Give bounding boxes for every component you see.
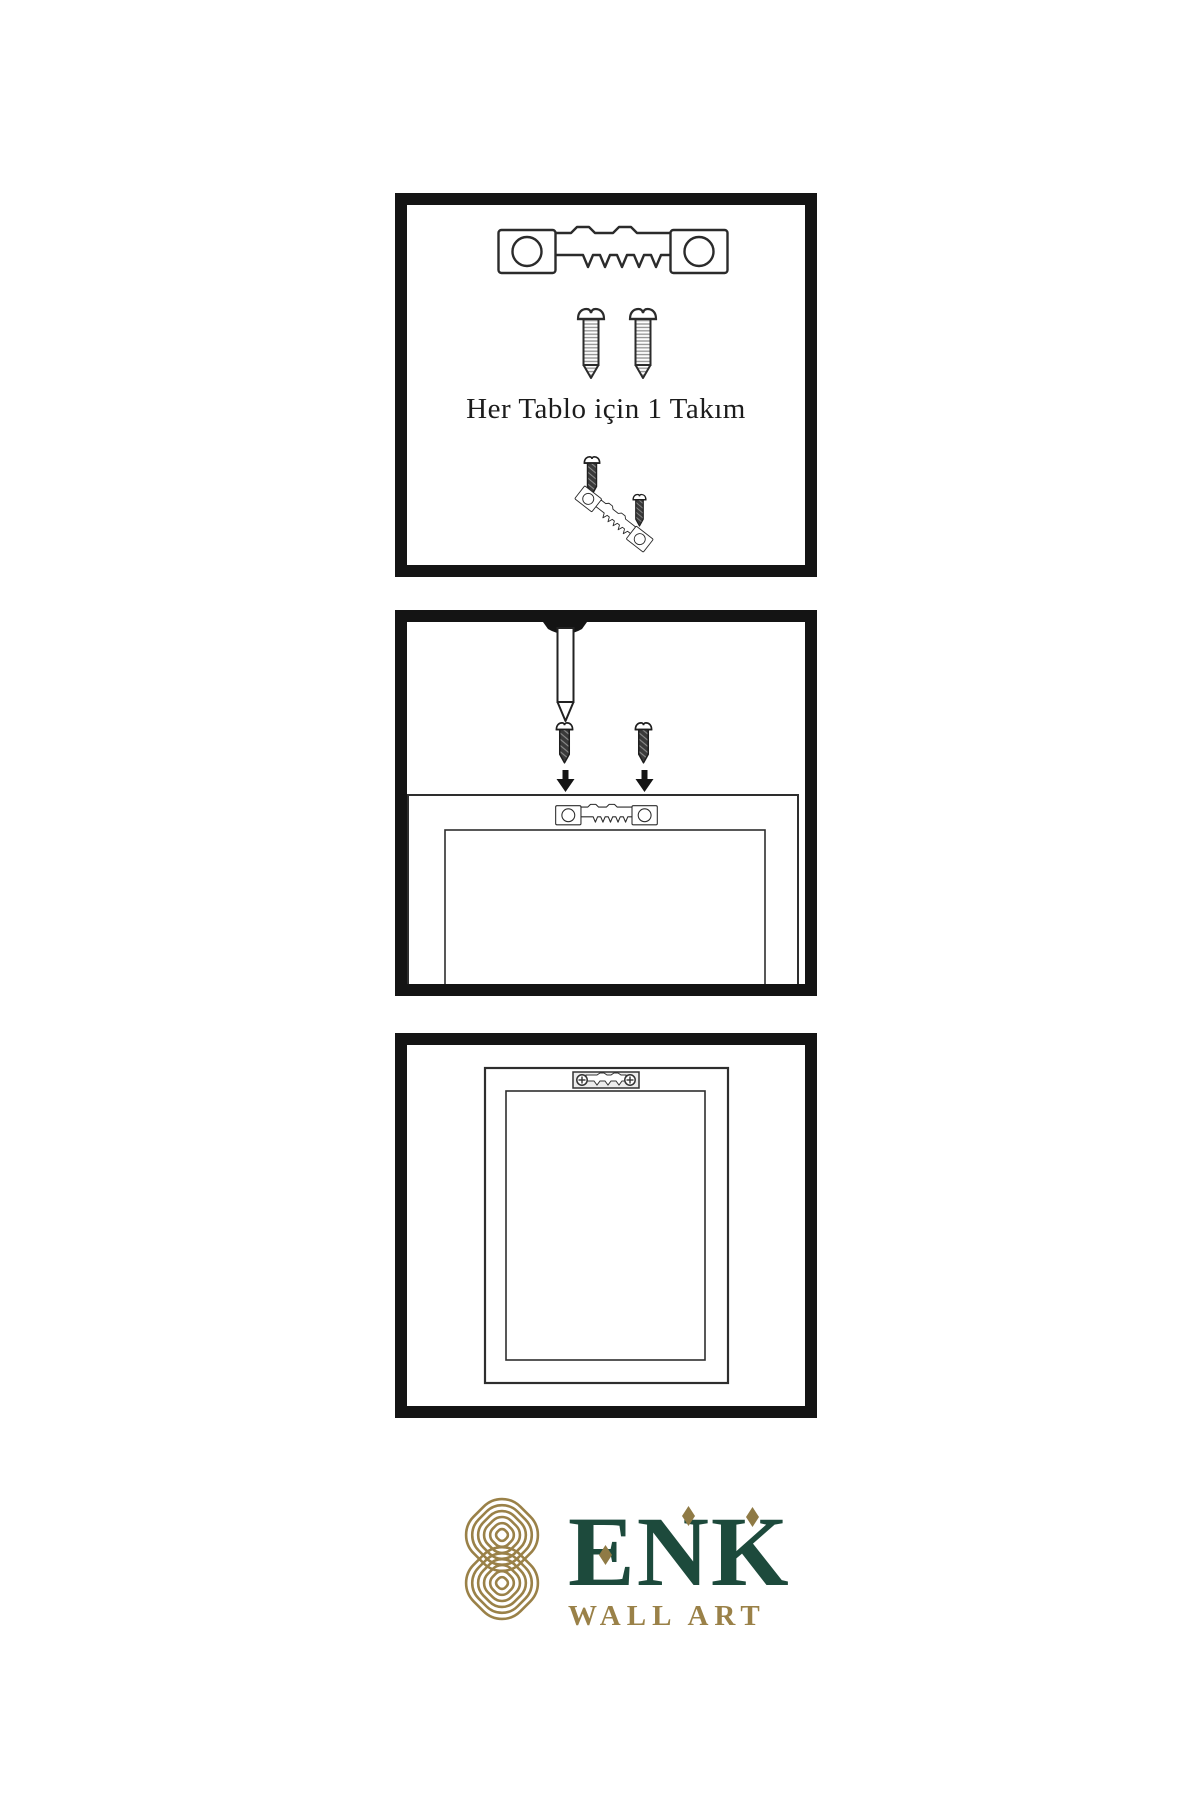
step-3-panel <box>395 1033 817 1418</box>
instruction-sheet: Her Tablo için 1 Takım <box>0 0 1200 1800</box>
sawtooth-hanger-icon <box>573 1072 639 1088</box>
hanging-frame-illustration <box>407 1045 805 1406</box>
screw-icon <box>577 309 605 378</box>
hanging-frame-icon <box>485 1068 728 1383</box>
screw-icon <box>556 723 573 763</box>
brand-logo: ENK WALL ART <box>438 1488 783 1638</box>
wall-nail-icon <box>543 622 587 721</box>
screw-into-hanger-icon <box>575 457 654 552</box>
set-per-frame-caption: Her Tablo için 1 Takım <box>407 393 805 426</box>
brand-name: ENK <box>568 1514 783 1590</box>
hardware-set-illustration <box>407 205 805 565</box>
attach-hanger-illustration <box>407 622 805 984</box>
knot-icon <box>438 1488 566 1630</box>
brand-text: ENK WALL ART <box>568 1514 783 1633</box>
brand-subtitle: WALL ART <box>568 1600 783 1633</box>
screw-icon <box>629 309 657 378</box>
frame-back-icon <box>408 795 798 984</box>
step-2-panel <box>395 610 817 996</box>
screw-icon <box>635 723 652 763</box>
sawtooth-hanger-icon <box>499 227 728 273</box>
step-1-panel: Her Tablo için 1 Takım <box>395 193 817 577</box>
arrow-down-icon <box>557 770 575 792</box>
arrow-down-icon <box>636 770 654 792</box>
